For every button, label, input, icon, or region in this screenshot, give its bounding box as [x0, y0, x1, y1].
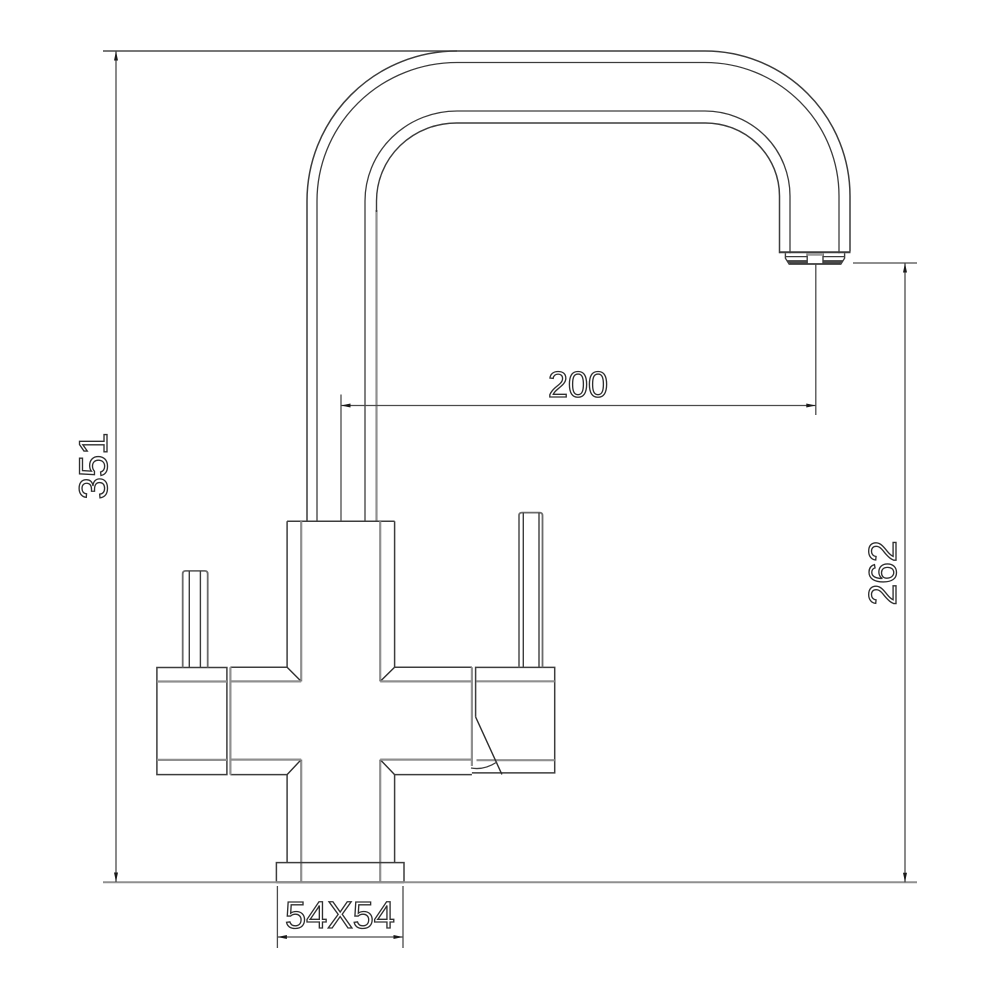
- svg-text:262: 262: [862, 540, 905, 605]
- svg-text:54X54: 54X54: [285, 895, 395, 937]
- svg-text:200: 200: [548, 364, 608, 405]
- svg-text:351: 351: [72, 433, 116, 500]
